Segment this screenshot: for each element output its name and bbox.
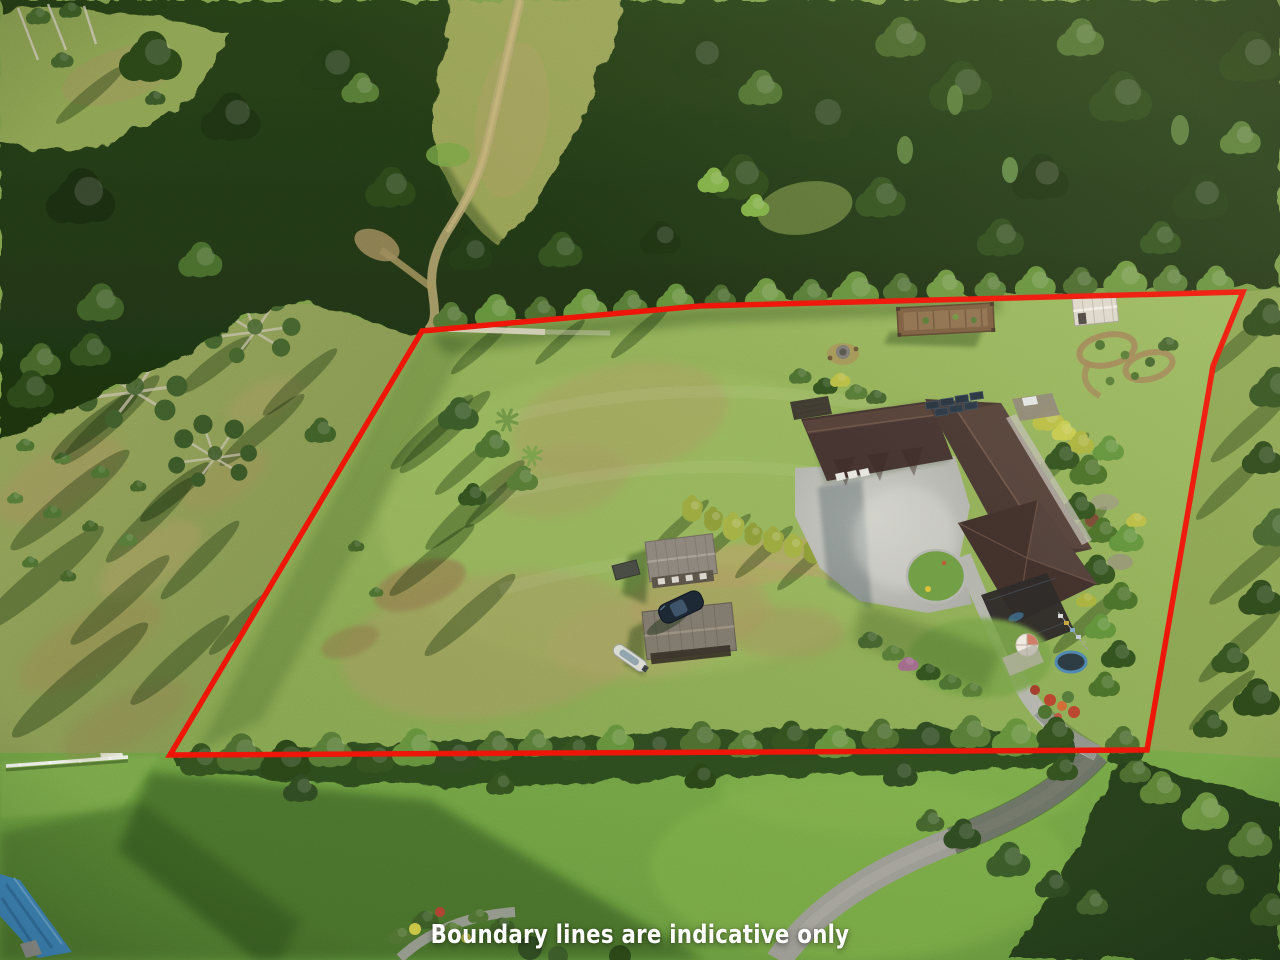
boundary-disclaimer-caption: Boundary lines are indicative only (431, 920, 850, 950)
aerial-scene (0, 0, 1280, 960)
aerial-property-photo: Boundary lines are indicative only (0, 0, 1280, 960)
film-grain (0, 0, 1280, 960)
